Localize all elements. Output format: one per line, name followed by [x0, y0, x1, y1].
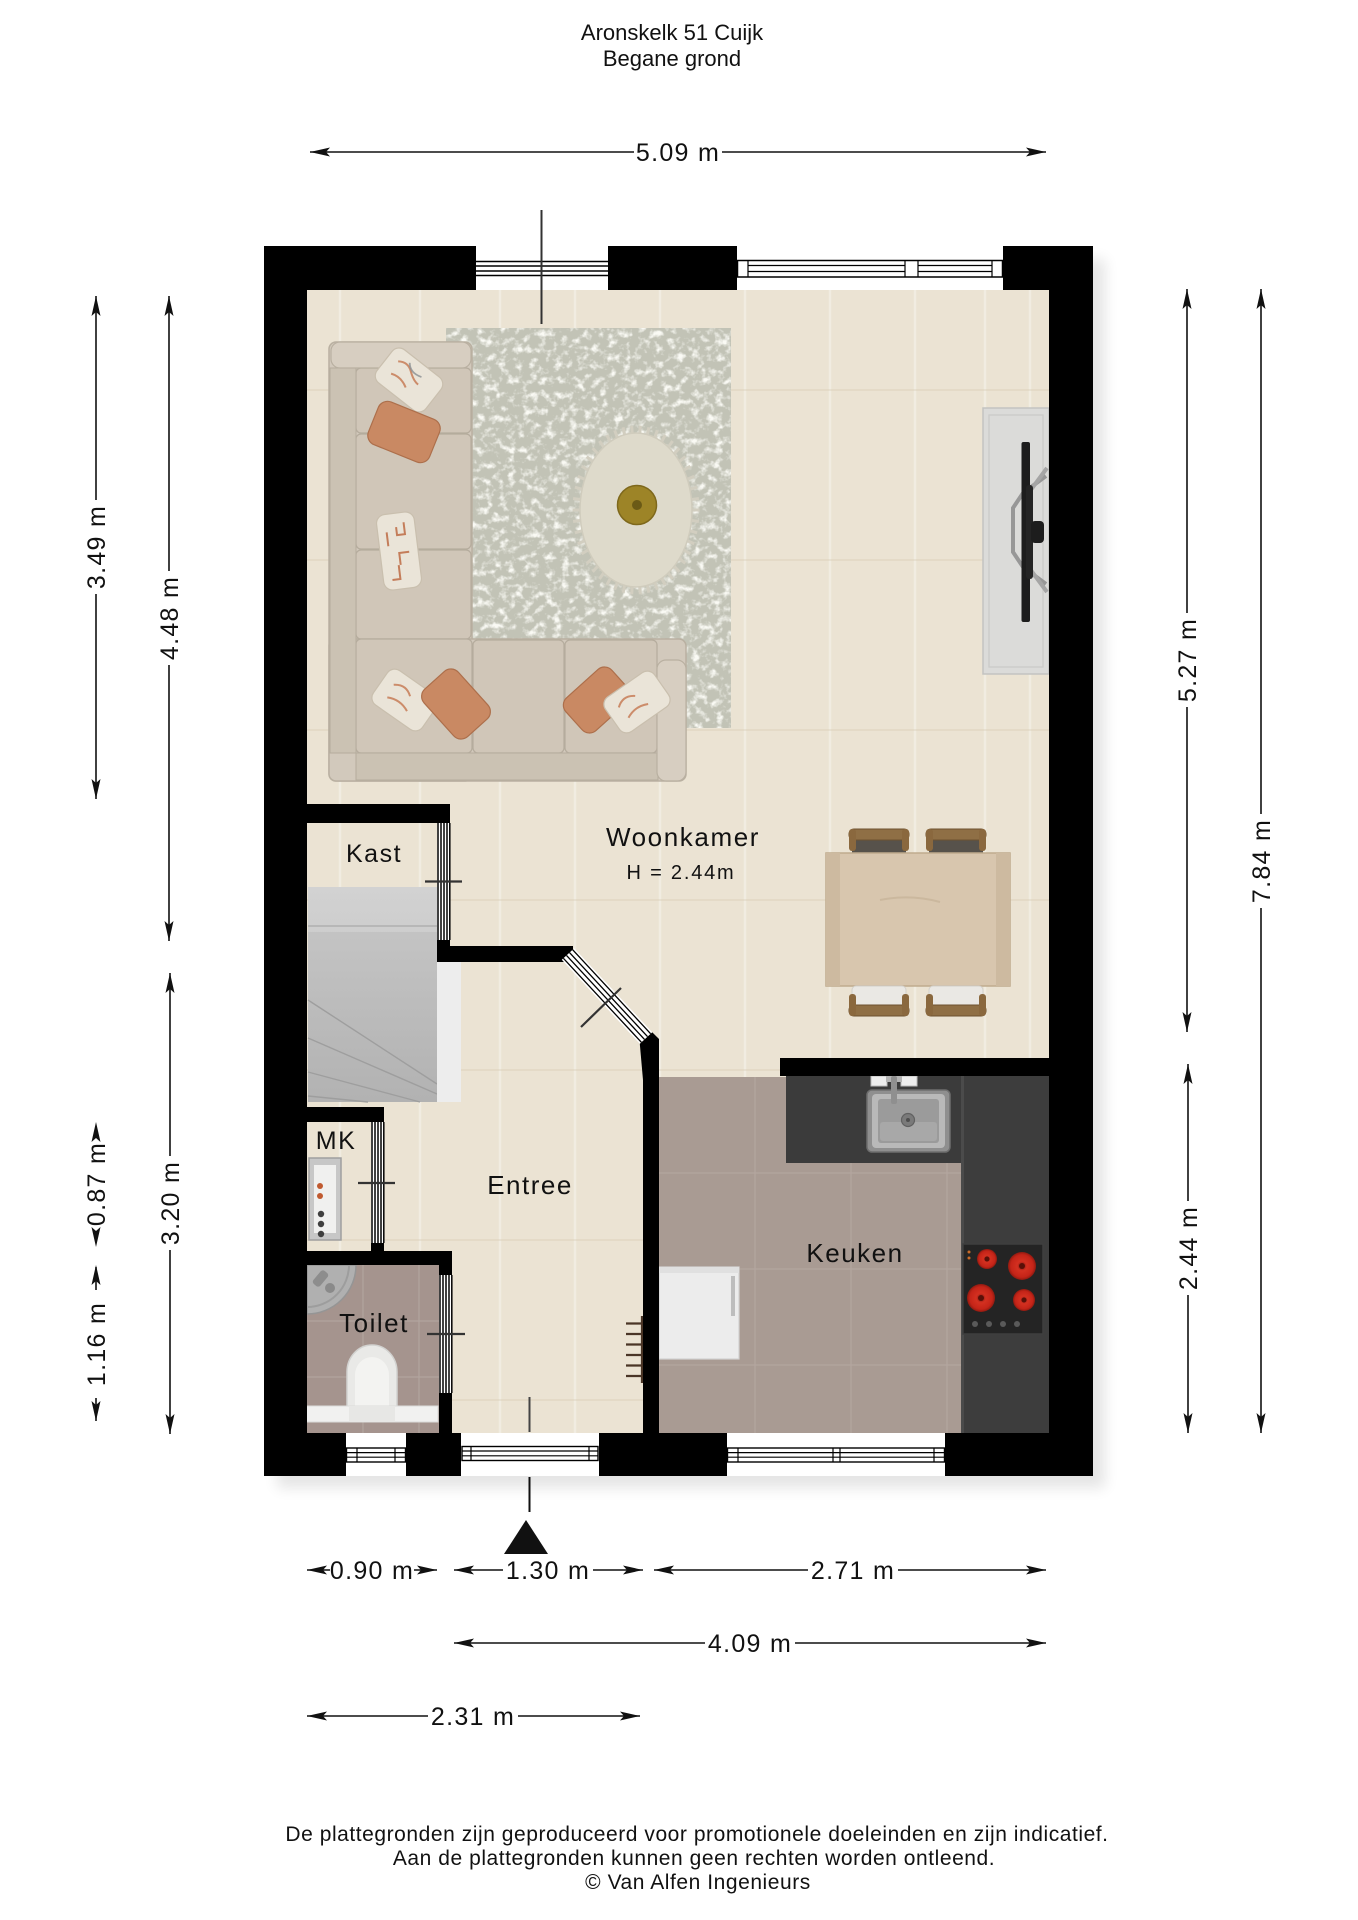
svg-text:5.09 m: 5.09 m: [636, 139, 720, 167]
svg-text:Entree: Entree: [487, 1170, 573, 1200]
svg-text:3.49 m: 3.49 m: [83, 505, 111, 589]
svg-text:Kast: Kast: [346, 840, 402, 868]
svg-text:5.27 m: 5.27 m: [1174, 618, 1202, 702]
svg-text:Woonkamer: Woonkamer: [606, 822, 760, 852]
svg-text:Aan de plattegronden kunnen ge: Aan de plattegronden kunnen geen rechten…: [393, 1847, 995, 1870]
svg-text:Keuken: Keuken: [806, 1238, 903, 1268]
svg-text:Begane grond: Begane grond: [603, 46, 741, 71]
svg-text:4.48 m: 4.48 m: [156, 576, 184, 660]
svg-text:Aronskelk 51 Cuijk: Aronskelk 51 Cuijk: [581, 20, 764, 45]
svg-text:H = 2.44m: H = 2.44m: [626, 862, 735, 884]
svg-text:Toilet: Toilet: [339, 1308, 409, 1338]
svg-text:© Van Alfen Ingenieurs: © Van Alfen Ingenieurs: [585, 1871, 811, 1894]
svg-text:MK: MK: [316, 1127, 357, 1155]
svg-text:2.71 m: 2.71 m: [811, 1557, 895, 1585]
svg-text:1.30 m: 1.30 m: [506, 1557, 590, 1585]
svg-text:0.90 m: 0.90 m: [330, 1557, 414, 1585]
svg-text:0.87 m: 0.87 m: [83, 1142, 111, 1226]
svg-text:De plattegronden zijn geproduc: De plattegronden zijn geproduceerd voor …: [285, 1823, 1108, 1846]
svg-text:2.44 m: 2.44 m: [1175, 1206, 1203, 1290]
svg-text:4.09 m: 4.09 m: [708, 1630, 792, 1658]
svg-text:1.16 m: 1.16 m: [83, 1302, 111, 1386]
svg-text:2.31 m: 2.31 m: [431, 1703, 515, 1731]
svg-text:3.20 m: 3.20 m: [157, 1161, 185, 1245]
svg-text:7.84 m: 7.84 m: [1248, 819, 1276, 903]
